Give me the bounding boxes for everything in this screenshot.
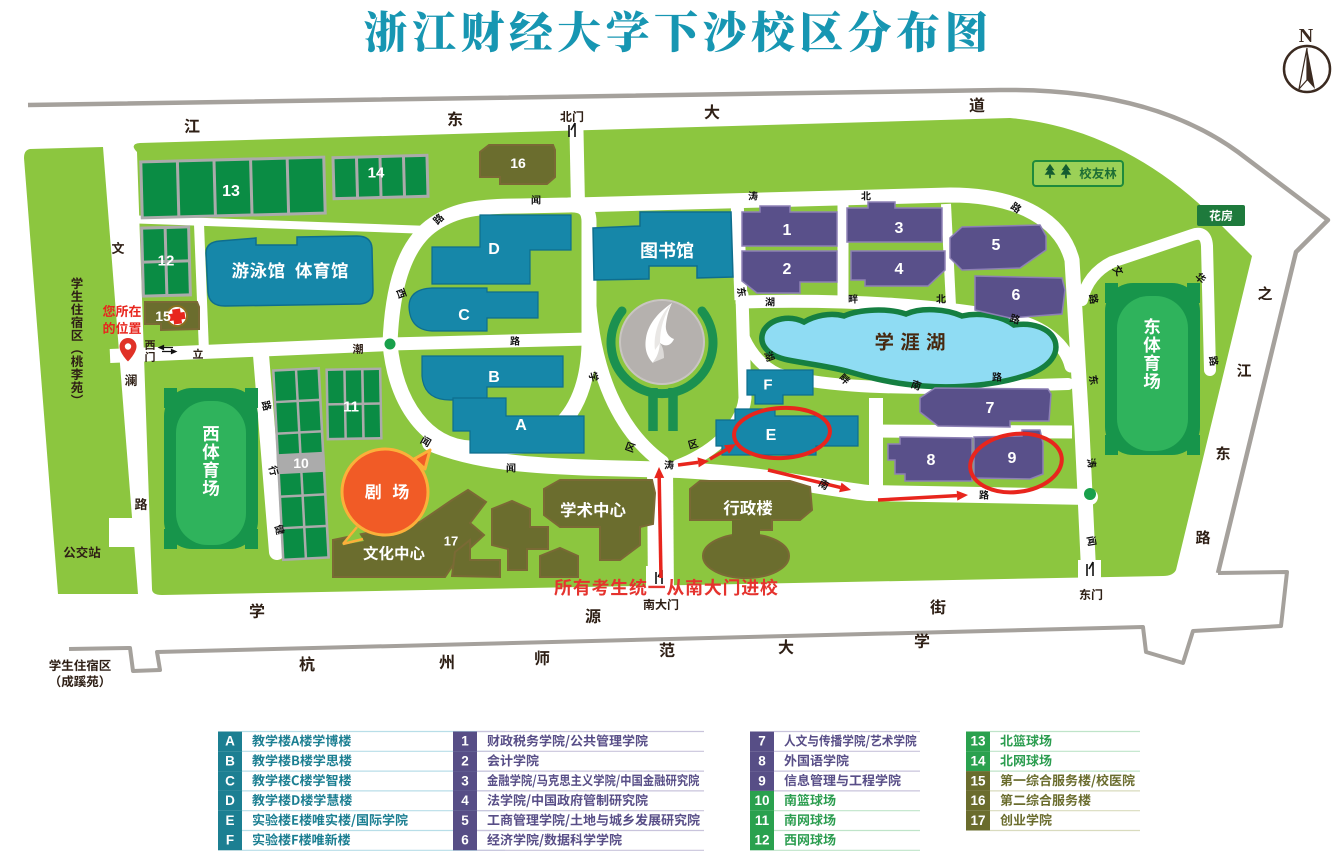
svg-text:C: C — [458, 307, 470, 324]
svg-text:N: N — [1299, 25, 1314, 47]
svg-text:D: D — [225, 793, 235, 808]
svg-text:8: 8 — [927, 452, 936, 469]
svg-text:8: 8 — [758, 754, 766, 769]
svg-text:2: 2 — [461, 754, 469, 769]
svg-text:C: C — [225, 773, 235, 788]
svg-text:5: 5 — [992, 237, 1001, 254]
svg-text:6: 6 — [1012, 287, 1021, 304]
svg-text:16: 16 — [510, 155, 526, 171]
svg-text:10: 10 — [754, 793, 769, 808]
svg-text:9: 9 — [1008, 450, 1017, 467]
svg-text:E: E — [225, 813, 234, 828]
svg-text:2: 2 — [783, 261, 792, 278]
svg-text:16: 16 — [970, 793, 986, 808]
svg-text:12: 12 — [158, 252, 175, 269]
svg-text:10: 10 — [293, 455, 309, 471]
svg-text:13: 13 — [222, 183, 240, 200]
svg-text:A: A — [515, 417, 527, 434]
svg-text:15: 15 — [155, 308, 171, 324]
svg-text:12: 12 — [754, 833, 769, 848]
svg-text:F: F — [763, 376, 772, 393]
svg-text:3: 3 — [895, 220, 904, 237]
svg-text:14: 14 — [368, 164, 385, 181]
svg-text:4: 4 — [461, 793, 469, 808]
svg-text:3: 3 — [461, 773, 469, 788]
svg-text:A: A — [225, 734, 235, 749]
svg-text:B: B — [488, 369, 500, 386]
svg-text:17: 17 — [970, 813, 985, 828]
svg-text:14: 14 — [970, 754, 986, 769]
svg-text:7: 7 — [758, 734, 766, 749]
svg-text:11: 11 — [755, 813, 770, 828]
svg-text:15: 15 — [970, 773, 986, 788]
svg-text:6: 6 — [461, 833, 469, 848]
svg-text:7: 7 — [986, 400, 995, 417]
svg-text:11: 11 — [343, 398, 359, 415]
svg-text:17: 17 — [444, 534, 458, 549]
svg-text:1: 1 — [783, 222, 792, 239]
svg-text:E: E — [766, 427, 777, 444]
svg-text:13: 13 — [970, 734, 986, 749]
svg-text:4: 4 — [895, 261, 904, 278]
svg-text:9: 9 — [758, 773, 766, 788]
svg-text:1: 1 — [461, 734, 469, 749]
svg-text:5: 5 — [461, 813, 469, 828]
svg-text:D: D — [488, 241, 500, 258]
svg-text:F: F — [226, 833, 234, 848]
svg-text:B: B — [225, 754, 235, 769]
